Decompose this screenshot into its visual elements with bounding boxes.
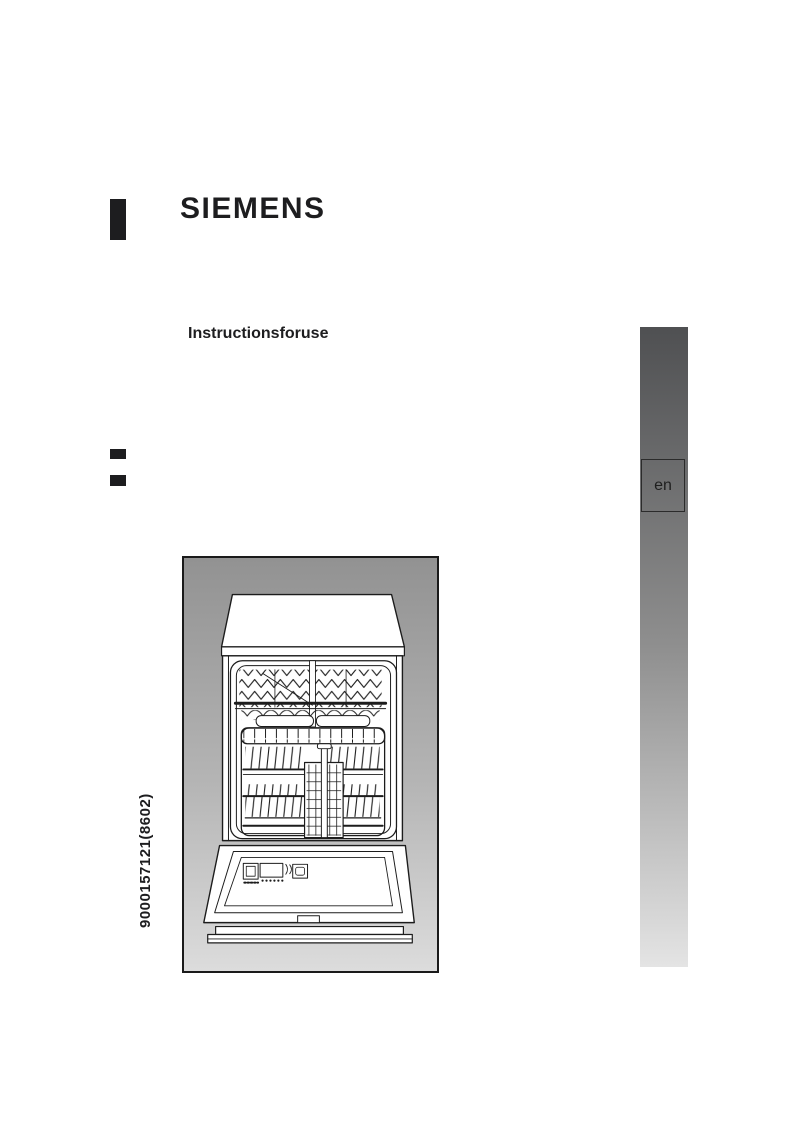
document-number: 9000157121(8602): [137, 793, 155, 928]
print-registration-mark-1: [110, 449, 126, 459]
language-label: en: [654, 477, 672, 495]
manual-cover-page: SIEMENS Instructionsforuse en: [0, 0, 802, 1134]
instructions-title: Instructionsforuse: [188, 324, 328, 343]
print-registration-bar: [110, 199, 126, 240]
illustration-frame: [182, 556, 439, 973]
language-box: en: [641, 459, 685, 512]
dishwasher-illustration: [184, 558, 437, 971]
language-gradient-bar: [640, 327, 688, 967]
siemens-logo: SIEMENS: [180, 192, 326, 226]
print-registration-mark-2: [110, 475, 126, 486]
